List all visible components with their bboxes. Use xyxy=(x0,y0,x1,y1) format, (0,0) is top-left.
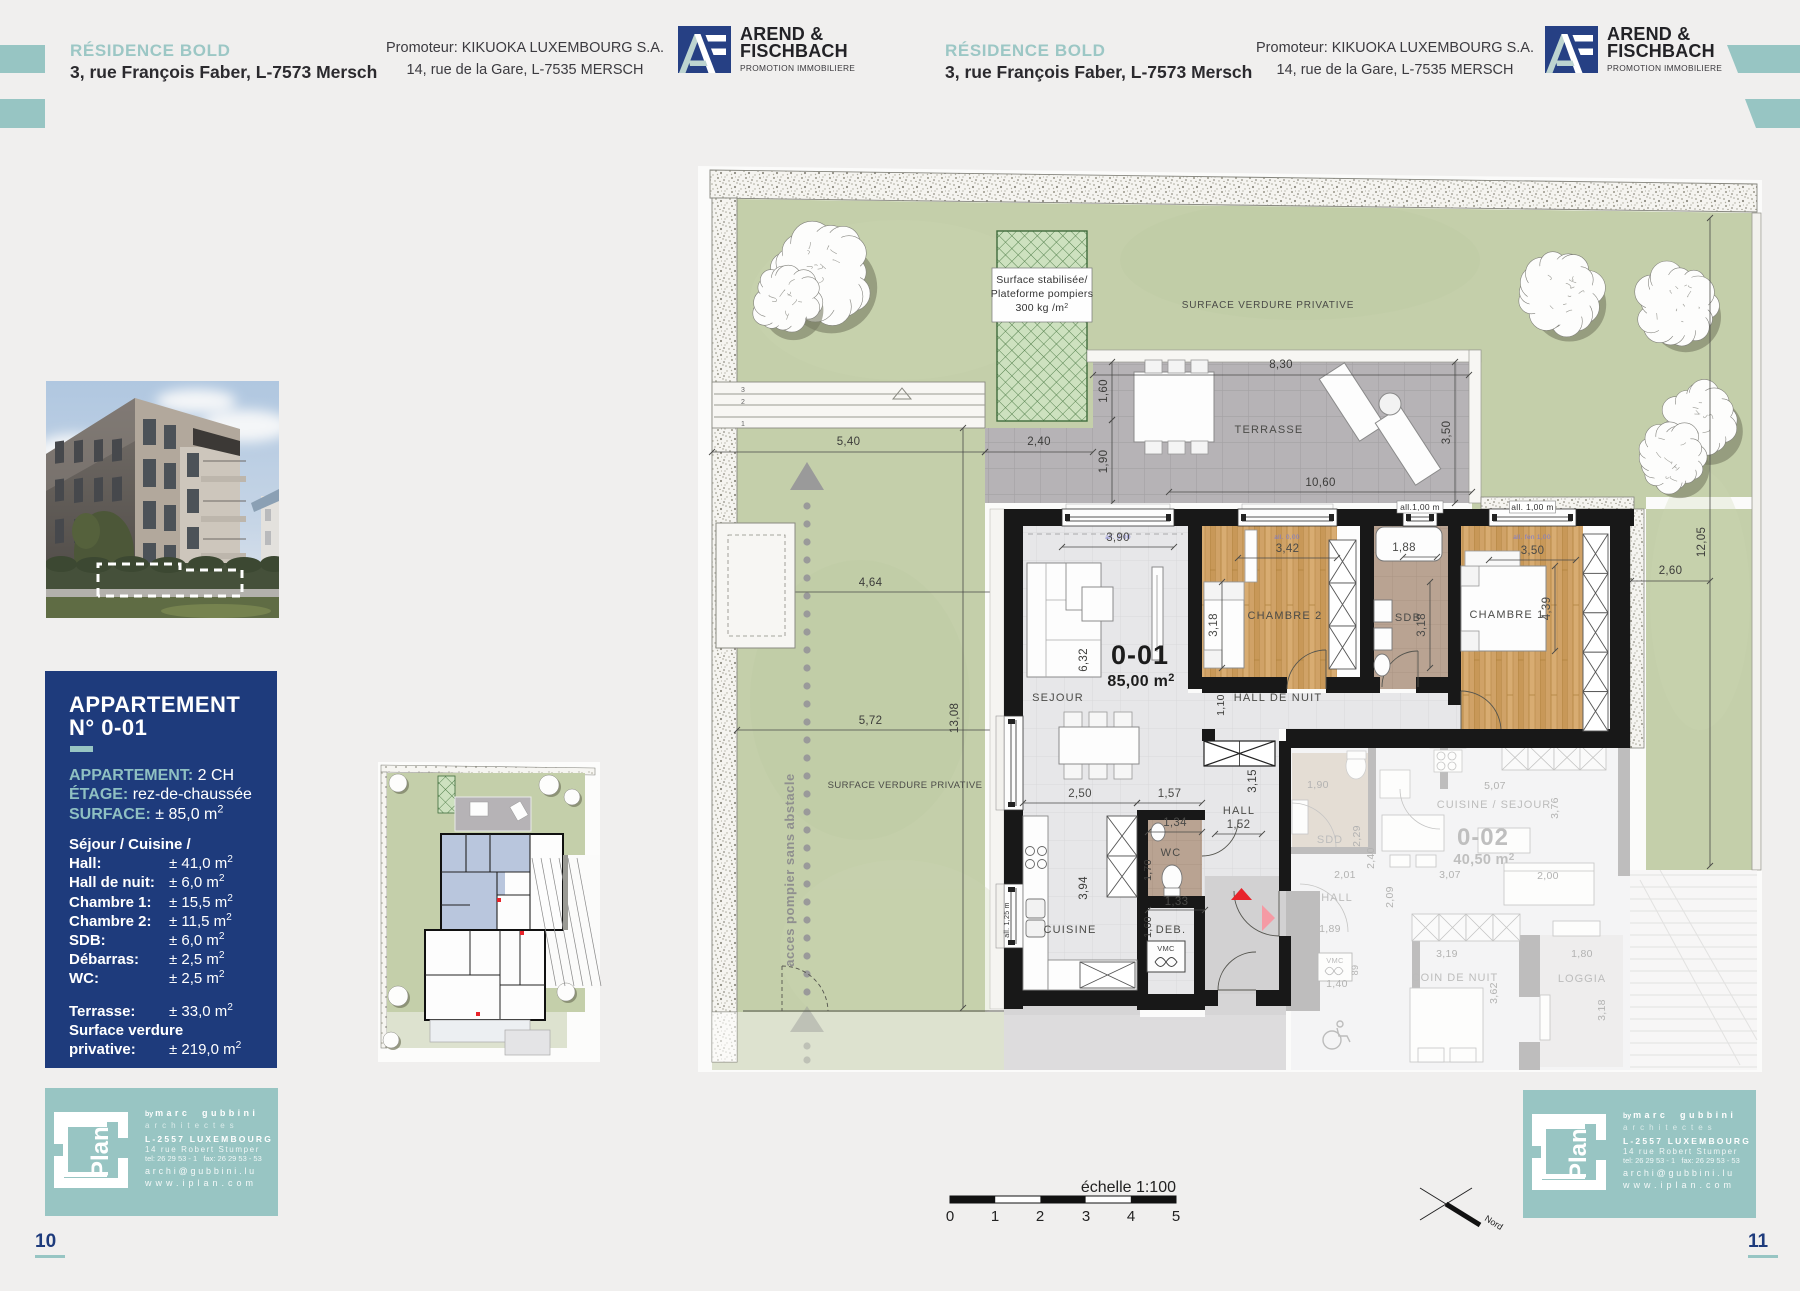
svg-text:Surface stabilisée/: Surface stabilisée/ xyxy=(996,274,1088,286)
svg-text:3,07: 3,07 xyxy=(1439,869,1461,881)
svg-text:2,40: 2,40 xyxy=(1027,436,1051,448)
svg-text:6,32: 6,32 xyxy=(1078,648,1090,672)
svg-text:3,18: 3,18 xyxy=(1416,613,1428,637)
svg-text:2,60: 2,60 xyxy=(1659,565,1683,577)
svg-text:4,39: 4,39 xyxy=(1541,597,1553,621)
svg-text:89: 89 xyxy=(1350,965,1360,976)
svg-text:1,89: 1,89 xyxy=(1319,923,1341,935)
svg-text:3: 3 xyxy=(741,387,745,394)
svg-text:SEJOUR: SEJOUR xyxy=(1032,692,1084,704)
svg-text:acces pompier sans abstacle: acces pompier sans abstacle xyxy=(782,773,797,966)
svg-text:1: 1 xyxy=(741,421,745,428)
svg-text:TERRASSE: TERRASSE xyxy=(1235,424,1304,436)
svg-text:1,40: 1,40 xyxy=(1326,978,1348,990)
svg-text:DEB.: DEB. xyxy=(1156,924,1186,936)
svg-text:5,40: 5,40 xyxy=(837,436,861,448)
svg-text:0-01: 0-01 xyxy=(1111,640,1169,670)
svg-text:LOGGIA: LOGGIA xyxy=(1558,973,1606,985)
svg-text:CUISINE: CUISINE xyxy=(1043,924,1096,936)
svg-text:5,07: 5,07 xyxy=(1484,780,1506,792)
svg-text:1,57: 1,57 xyxy=(1158,788,1182,800)
svg-text:1,70: 1,70 xyxy=(1142,859,1154,881)
svg-text:3,18: 3,18 xyxy=(1596,999,1608,1021)
svg-text:1,10: 1,10 xyxy=(1215,694,1227,716)
svg-text:5,72: 5,72 xyxy=(859,715,883,727)
svg-text:3,18: 3,18 xyxy=(1208,613,1220,637)
svg-text:all. 0,00: all. 0,00 xyxy=(1274,534,1300,541)
svg-text:2,01: 2,01 xyxy=(1334,869,1356,881)
svg-text:3,94: 3,94 xyxy=(1078,876,1090,900)
svg-text:85,00 m2: 85,00 m2 xyxy=(1107,672,1174,690)
svg-text:2,29: 2,29 xyxy=(1351,825,1363,847)
svg-text:1,90: 1,90 xyxy=(1307,779,1329,791)
svg-text:0-02: 0-02 xyxy=(1457,824,1509,851)
svg-text:12,05: 12,05 xyxy=(1696,527,1708,557)
svg-text:2,50: 2,50 xyxy=(1068,788,1092,800)
svg-text:1,34: 1,34 xyxy=(1163,817,1187,829)
svg-text:3,15: 3,15 xyxy=(1247,769,1259,793)
svg-text:2: 2 xyxy=(741,399,745,406)
svg-text:3,76: 3,76 xyxy=(1549,797,1561,819)
svg-text:all. 1,25 m: all. 1,25 m xyxy=(1004,902,1011,938)
svg-text:13,08: 13,08 xyxy=(949,703,961,733)
svg-text:1,90: 1,90 xyxy=(1098,450,1110,474)
svg-text:Plateforme pompiers: Plateforme pompiers xyxy=(991,288,1094,300)
svg-text:all.1,00 m: all.1,00 m xyxy=(1400,502,1440,512)
svg-text:2,40: 2,40 xyxy=(1365,847,1377,869)
svg-text:HALL: HALL xyxy=(1223,805,1255,817)
svg-text:VMC: VMC xyxy=(1157,944,1175,953)
svg-text:3,90: 3,90 xyxy=(1106,532,1130,544)
svg-text:WC: WC xyxy=(1161,847,1182,859)
svg-text:SDD: SDD xyxy=(1317,834,1343,846)
svg-text:1,52: 1,52 xyxy=(1227,819,1251,831)
svg-text:8,30: 8,30 xyxy=(1269,359,1293,371)
svg-text:300 kg /m2: 300 kg /m2 xyxy=(1015,302,1068,314)
svg-text:HALL DE NUIT: HALL DE NUIT xyxy=(1234,692,1323,704)
svg-text:SURFACE VERDURE PRIVATIVE: SURFACE VERDURE PRIVATIVE xyxy=(828,780,983,791)
svg-text:all. 1,00 m: all. 1,00 m xyxy=(1511,502,1554,512)
svg-text:all. fen 1,00: all. fen 1,00 xyxy=(1513,534,1551,541)
svg-text:3,42: 3,42 xyxy=(1276,543,1300,555)
svg-text:1,33: 1,33 xyxy=(1165,896,1189,908)
svg-text:CUISINE / SEJOUR: CUISINE / SEJOUR xyxy=(1437,799,1551,811)
svg-text:2,09: 2,09 xyxy=(1384,886,1396,908)
svg-text:VMC: VMC xyxy=(1326,956,1344,965)
svg-text:COIN DE NUIT: COIN DE NUIT xyxy=(1412,972,1499,984)
svg-text:3,50: 3,50 xyxy=(1521,545,1545,557)
svg-text:CHAMBRE 2: CHAMBRE 2 xyxy=(1248,610,1323,622)
svg-text:1,88: 1,88 xyxy=(1392,542,1416,554)
svg-text:10,60: 10,60 xyxy=(1305,477,1335,489)
svg-text:3,62: 3,62 xyxy=(1488,982,1500,1004)
svg-text:SURFACE VERDURE PRIVATIVE: SURFACE VERDURE PRIVATIVE xyxy=(1182,300,1354,311)
svg-text:1,80: 1,80 xyxy=(1571,948,1593,960)
svg-text:HALL: HALL xyxy=(1321,892,1353,904)
svg-text:2,00: 2,00 xyxy=(1537,870,1559,882)
svg-text:3,19: 3,19 xyxy=(1436,948,1458,960)
svg-text:4,64: 4,64 xyxy=(859,577,883,589)
svg-text:3,50: 3,50 xyxy=(1441,421,1453,445)
svg-text:1,60: 1,60 xyxy=(1142,916,1154,938)
svg-text:1,60: 1,60 xyxy=(1098,379,1110,403)
svg-text:CHAMBRE 1: CHAMBRE 1 xyxy=(1470,609,1545,621)
